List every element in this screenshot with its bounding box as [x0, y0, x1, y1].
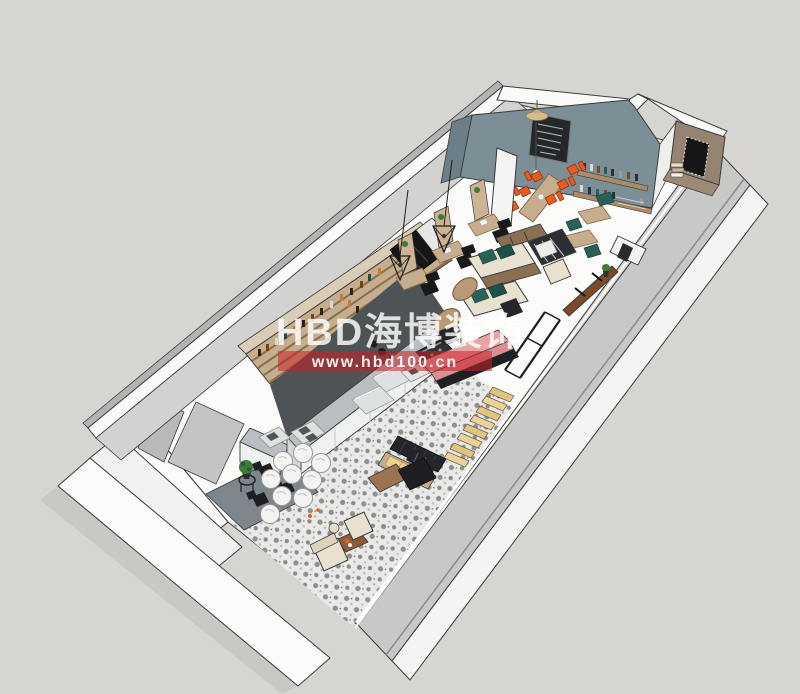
potted-plant	[239, 460, 253, 474]
small-stool	[329, 523, 339, 533]
watermark-url-text: www.hbd100.cn	[311, 354, 458, 371]
watermark-brand-text: HBD海博装饰	[276, 312, 524, 354]
ledge-plant	[602, 264, 610, 272]
cafe-3d-render: HBD海博装饰 www.hbd100.cn	[0, 0, 800, 694]
book-stack	[671, 163, 684, 177]
table-vase	[538, 194, 544, 200]
watermark: HBD海博装饰 www.hbd100.cn	[276, 312, 524, 371]
interior-render-canvas: HBD海博装饰 www.hbd100.cn	[0, 0, 800, 694]
